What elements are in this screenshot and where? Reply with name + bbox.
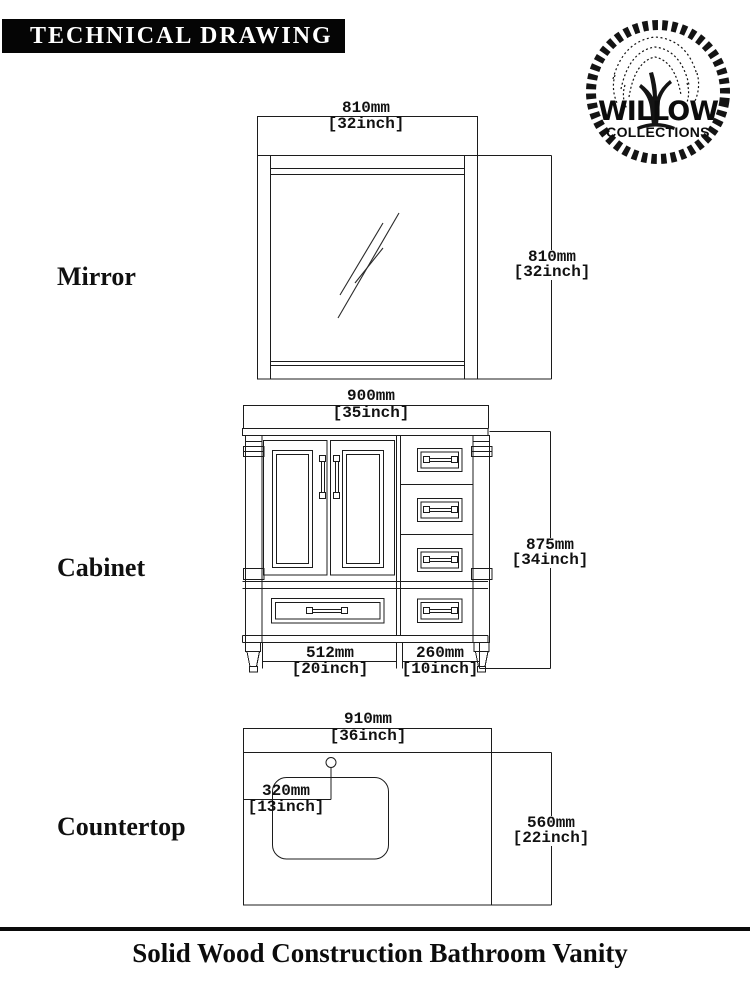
mirror-section-label: Mirror [57, 264, 136, 290]
dim-mm-value: 900mm [333, 389, 410, 404]
countertop-drawing [244, 729, 552, 906]
mirror-glass-reflection-lines [338, 213, 399, 318]
technical-drawing-page: TECHNICAL DRAWING WILLOW COLLECTIONS [0, 0, 750, 989]
countertop-width-dim: 910mm [36inch] [330, 712, 407, 744]
footer-title: Solid Wood Construction Bathroom Vanity [132, 938, 628, 968]
mirror-drawing [258, 117, 552, 380]
countertop-section-label: Countertop [57, 814, 186, 840]
dim-mm-value: 320mm [248, 784, 325, 799]
dim-inch-value: [35inch] [333, 406, 410, 421]
dim-mm-value: 910mm [330, 712, 407, 727]
cabinet-section-label: Cabinet [57, 555, 145, 581]
dim-inch-value: [34inch] [512, 553, 589, 568]
dim-inch-value: [36inch] [330, 729, 407, 744]
dim-inch-value: [22inch] [513, 831, 590, 846]
dim-inch-value: [10inch] [402, 662, 479, 677]
dim-inch-value: [32inch] [328, 117, 405, 132]
faucet-hole-icon [326, 758, 336, 768]
cabinet-doors-width-dim: 512mm [20inch] [292, 646, 369, 677]
dim-inch-value: [32inch] [514, 265, 591, 280]
cabinet-width-dim: 900mm [35inch] [333, 389, 410, 421]
dim-mm-value: 810mm [328, 101, 405, 116]
footer-divider [0, 927, 750, 931]
dim-mm-value: 512mm [292, 646, 369, 661]
dim-inch-value: [13inch] [248, 800, 325, 815]
mirror-height-dim: 810mm [32inch] [512, 250, 593, 280]
countertop-faucet-offset-dim: 320mm [13inch] [248, 784, 325, 815]
cabinet-height-dim: 875mm [34inch] [510, 538, 591, 568]
countertop-depth-dim: 560mm [22inch] [511, 816, 592, 846]
dim-inch-value: [20inch] [292, 662, 369, 677]
mirror-width-dim: 810mm [32inch] [328, 101, 405, 132]
cabinet-drawers-width-dim: 260mm [10inch] [402, 646, 479, 677]
dim-mm-value: 260mm [402, 646, 479, 661]
cabinet-drawing [243, 406, 551, 673]
